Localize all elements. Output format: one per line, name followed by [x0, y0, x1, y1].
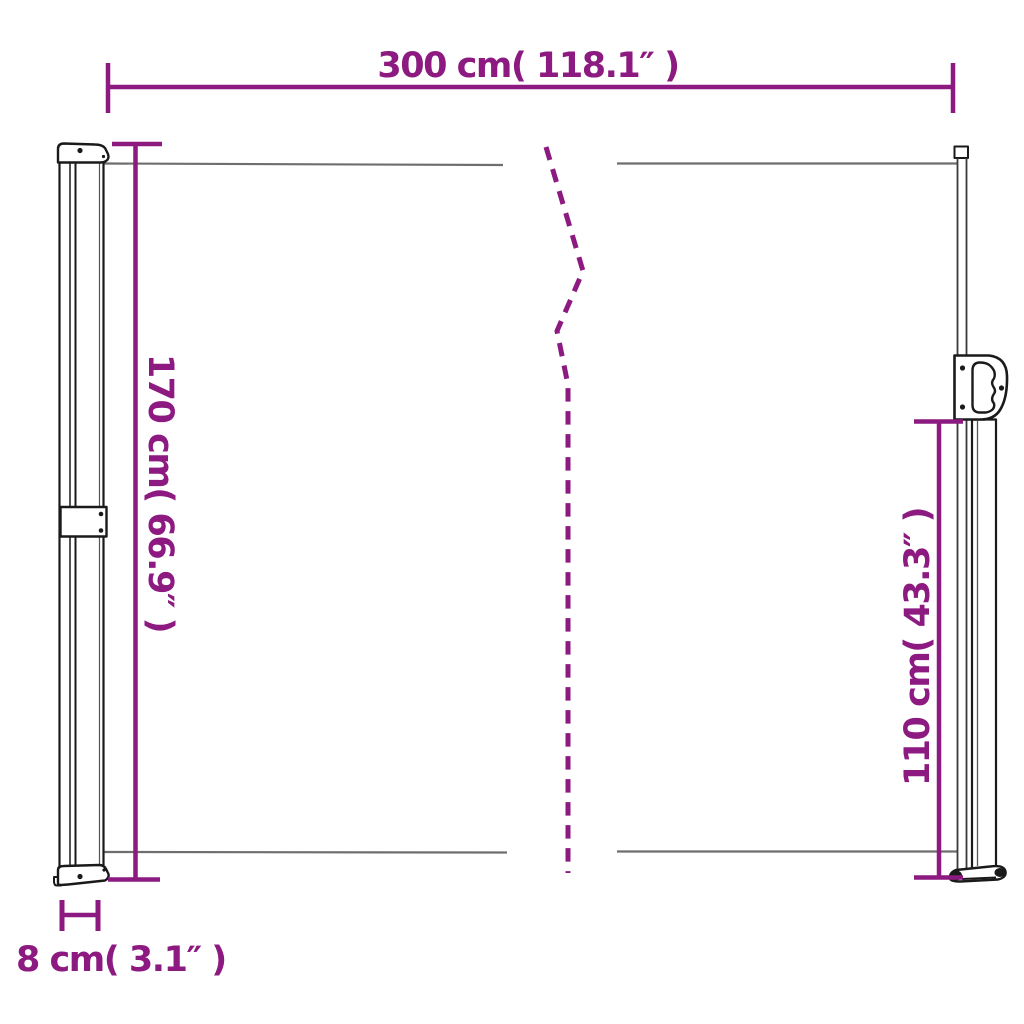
cassette-post-left	[54, 144, 109, 886]
depth-bottom-label: 8 cm( 3.1″ )	[16, 940, 226, 980]
fabric-bottom-left-line	[104, 852, 507, 853]
height-right-label: 110 cm( 43.3″ )	[898, 508, 938, 786]
foot-end-right	[995, 868, 1006, 877]
bottom-cap-pin	[102, 868, 105, 871]
fabric-panel	[104, 164, 957, 853]
fabric-break-dashed-line	[546, 147, 583, 873]
awning-diagram-svg: 300 cm( 118.1″ ) 170 cm( 66.9″ ) 110 cm(…	[0, 0, 1024, 1024]
break-line-group	[546, 147, 583, 873]
width-top-label: 300 cm( 118.1″ )	[377, 46, 678, 86]
clamp-screw-top	[99, 512, 104, 517]
dimension-annotations	[62, 63, 963, 931]
product-dimension-diagram: 300 cm( 118.1″ ) 170 cm( 66.9″ ) 110 cm(…	[0, 0, 1024, 1024]
handle-screw-top	[960, 365, 965, 370]
pole-top-cap	[955, 147, 969, 159]
top-cap-screw	[77, 148, 82, 153]
top-cap-pin	[102, 155, 105, 158]
clamp-screw-bottom	[99, 528, 104, 533]
bottom-cap-screw	[77, 874, 82, 879]
post-bottom-cap	[58, 865, 109, 885]
handle-grip-cutout	[973, 363, 996, 413]
pole-lower-tube	[972, 420, 996, 869]
handle-screw-bottom	[960, 404, 965, 409]
post-top-cap	[58, 144, 108, 163]
handle-screw-right	[999, 385, 1004, 390]
height-left-label: 170 cm( 66.9″ )	[140, 354, 180, 632]
pull-pole-right	[950, 147, 1007, 882]
fabric-top-left-line	[104, 164, 503, 166]
